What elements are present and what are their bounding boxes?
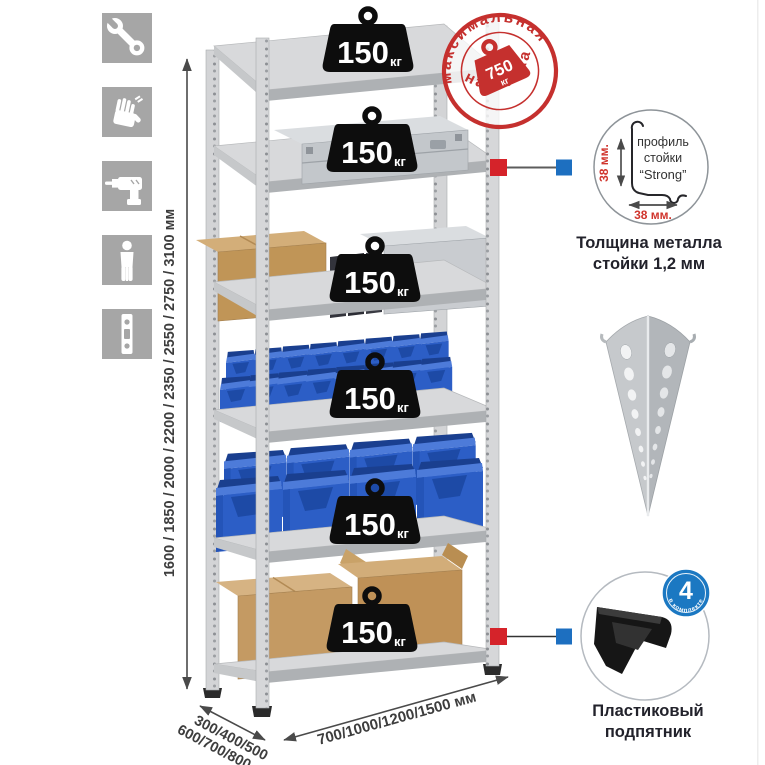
gloves-icon [102,87,152,137]
person-icon [102,235,152,285]
quantity-value: 4 [679,577,693,605]
svg-text:кг: кг [397,400,410,415]
profile-detail-circle: 38 мм. 38 мм. профиль стойки “Strong” [594,110,708,224]
svg-text:150: 150 [341,135,393,170]
quantity-badge: 4 в комплекте [662,569,710,617]
foot-detail-circle: 4 в комплекте [581,569,710,700]
load-badge-2: 150 кг [327,109,418,172]
page-edge-line [757,0,759,765]
height-dimension: 1600 / 1850 / 2000 / 2200 / 2350 / 2550 … [162,59,187,689]
callout-connector-bottom [490,628,572,645]
callout-marker-red-bottom [490,628,507,645]
corner-post-photo [602,316,695,516]
profile-horizontal-dim: 38 мм. [634,208,672,222]
perforated-post-icon [102,309,152,359]
callout-marker-blue-top [556,160,572,176]
rack-post-front-left [256,38,269,708]
illustration-canvas: 1600 / 1850 / 2000 / 2200 / 2350 / 2550 … [0,0,765,765]
svg-text:кг: кг [397,284,410,299]
product-infographic: 1600 / 1850 / 2000 / 2200 / 2350 / 2550 … [0,0,765,765]
profile-label-line3: “Strong” [640,167,687,182]
drill-icon [102,161,152,211]
sidebar-icons [101,12,152,359]
callout-marker-blue-bottom [556,629,572,645]
svg-text:кг: кг [394,634,407,649]
width-dimension: 700/1000/1200/1500 мм [284,677,508,749]
profile-label-line2: стойки [644,151,682,165]
profile-vertical-dim: 38 мм. [597,144,611,182]
callout-connector-top [490,159,572,176]
thickness-caption-line1: Толщина металла [576,234,722,252]
load-value: 150 [337,35,389,70]
wrench-icon [101,12,152,63]
profile-label-line1: профиль [637,135,689,149]
svg-text:150: 150 [344,381,396,416]
svg-text:150: 150 [344,265,396,300]
load-unit: кг [390,54,403,69]
foot-caption-line2: подпятник [605,723,692,741]
load-badge-1: 150 кг [323,9,414,72]
svg-text:150: 150 [344,507,396,542]
width-dim-line [284,677,508,740]
width-dim-label: 700/1000/1200/1500 мм [316,689,479,749]
foot-caption-line1: Пластиковый [592,702,703,720]
callout-marker-red-top [490,159,507,176]
height-dim-label: 1600 / 1850 / 2000 / 2200 / 2350 / 2550 … [162,209,178,577]
svg-text:кг: кг [394,154,407,169]
svg-text:кг: кг [397,526,410,541]
thickness-caption-line2: стойки 1,2 мм [593,255,705,273]
svg-text:150: 150 [341,615,393,650]
